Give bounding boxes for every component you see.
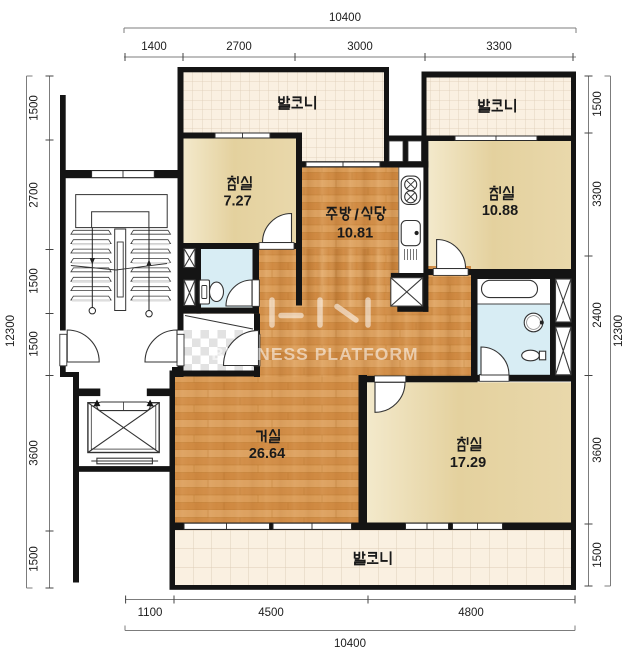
svg-text:3300: 3300 — [592, 181, 604, 207]
svg-text:2700: 2700 — [29, 182, 41, 208]
svg-text:1100: 1100 — [138, 607, 163, 619]
svg-text:1500: 1500 — [29, 331, 41, 357]
svg-text:4500: 4500 — [258, 607, 284, 619]
svg-text:12300: 12300 — [5, 315, 17, 347]
svg-text:1500: 1500 — [592, 91, 604, 117]
svg-text:3600: 3600 — [592, 437, 604, 463]
svg-text:17.29: 17.29 — [450, 455, 486, 471]
svg-text:2700: 2700 — [226, 41, 252, 53]
svg-text:/: / — [354, 207, 359, 224]
svg-text:10.81: 10.81 — [337, 226, 373, 242]
svg-text:3300: 3300 — [486, 41, 512, 53]
svg-text:1400: 1400 — [141, 41, 167, 53]
svg-text:2400: 2400 — [592, 302, 604, 328]
svg-text:10.88: 10.88 — [482, 203, 518, 219]
svg-text:26.64: 26.64 — [249, 446, 285, 462]
svg-text:3000: 3000 — [347, 41, 373, 53]
svg-text:10400: 10400 — [329, 12, 361, 24]
svg-text:BUSINESS PLATFORM: BUSINESS PLATFORM — [211, 344, 418, 364]
svg-text:1500: 1500 — [29, 546, 41, 572]
svg-text:12300: 12300 — [613, 315, 625, 347]
svg-text:4800: 4800 — [458, 607, 484, 619]
svg-text:3600: 3600 — [29, 440, 41, 466]
svg-text:10400: 10400 — [334, 638, 366, 650]
svg-text:1500: 1500 — [592, 542, 604, 568]
svg-text:1500: 1500 — [29, 268, 41, 294]
svg-text:1500: 1500 — [29, 95, 41, 121]
svg-text:7.27: 7.27 — [223, 194, 251, 210]
